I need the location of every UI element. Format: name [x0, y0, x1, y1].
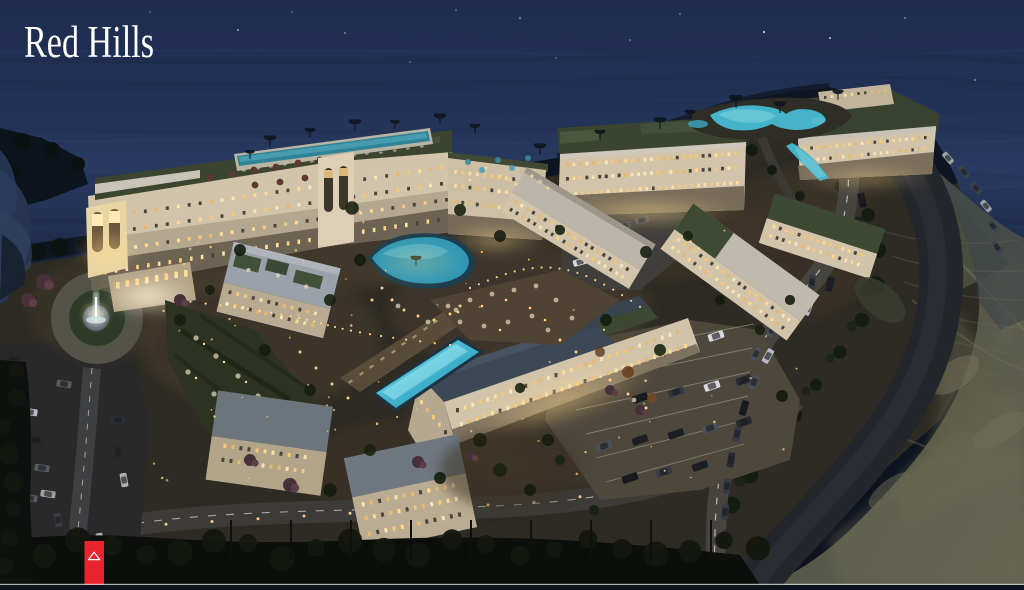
svg-text:Red Hills: Red Hills — [24, 17, 154, 67]
